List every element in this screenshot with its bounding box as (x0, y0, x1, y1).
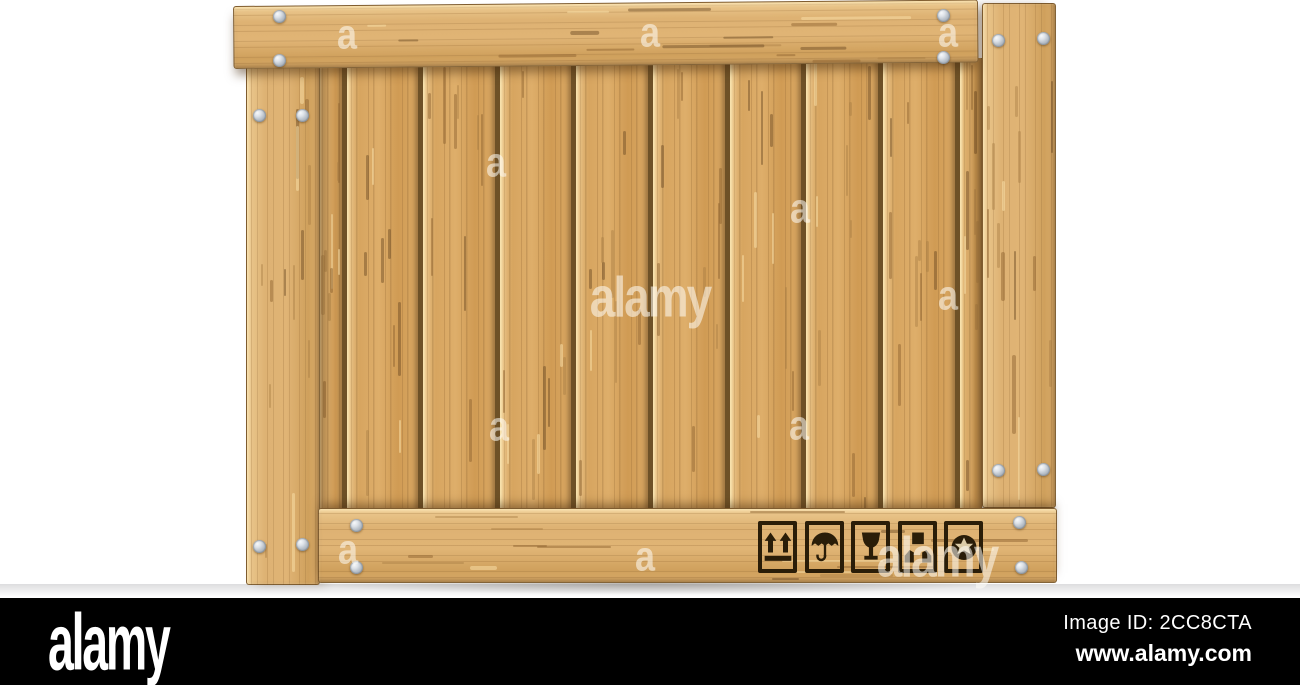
wood-grain-streak (537, 434, 540, 474)
rivet-icon (992, 464, 1005, 477)
wood-grain-streak (770, 114, 773, 147)
wood-grain-streak (261, 264, 263, 286)
wood-grain-streak (499, 54, 577, 58)
wood-grain-streak (507, 424, 509, 463)
wood-grain-streak (408, 555, 432, 558)
wood-plank (500, 58, 571, 513)
rivet-icon (937, 51, 950, 64)
wood-grain-streak (296, 126, 299, 192)
wood-grain-streak (742, 255, 744, 301)
wood-grain-streak (615, 301, 617, 383)
rivet-icon (273, 54, 286, 67)
wood-grain-streak (457, 85, 459, 119)
wood-grain-streak (812, 60, 860, 63)
wood-grain-streak (328, 293, 331, 320)
wood-grain-streak (997, 223, 1000, 268)
wood-grain-streak (393, 325, 395, 368)
wood-grain-streak (974, 91, 977, 154)
wood-grain-streak (966, 171, 969, 250)
wood-grain-streak (367, 24, 387, 26)
wood-grain-streak (589, 269, 592, 289)
wood-grain-streak (915, 256, 918, 327)
rivet-icon (992, 34, 1005, 47)
wood-grain-streak (716, 324, 719, 349)
wood-grain-streak (852, 453, 855, 497)
symbol-keep-dry-icon (805, 521, 844, 573)
rivet-icon (296, 109, 309, 122)
wood-grain-streak (308, 340, 311, 378)
wood-grain-streak (548, 378, 551, 427)
wood-grain-streak (623, 131, 626, 156)
wood-grain-streak (776, 54, 795, 56)
symbol-this-side-up-icon (758, 521, 797, 573)
wood-grain-streak (918, 240, 921, 262)
symbol-handle-with-care-icon (898, 521, 937, 573)
wood-grain-streak (301, 230, 304, 280)
wood-grain-streak (477, 115, 479, 150)
wood-grain-streak (800, 46, 846, 49)
wood-grain-streak (772, 578, 799, 580)
wood-plank (730, 58, 801, 513)
wood-grain-streak (761, 91, 764, 166)
wood-grain-streak (381, 238, 384, 283)
wood-grain-streak (975, 304, 978, 330)
footer-credit-block: Image ID: 2CC8CTA www.alamy.com (1063, 612, 1252, 667)
wood-grain-streak (372, 148, 374, 185)
wood-grain-streak (754, 192, 757, 249)
rivet-icon (273, 10, 286, 23)
wood-grain-streak (1002, 181, 1005, 211)
wood-grain-streak (628, 7, 711, 11)
crate-right-board (982, 3, 1056, 508)
wood-grain-streak (292, 493, 294, 572)
wood-grain-streak (382, 562, 464, 565)
wood-grain-streak (537, 546, 611, 548)
rivet-icon (350, 561, 363, 574)
wood-grain-streak (820, 574, 893, 577)
wood-grain-streak (723, 36, 774, 39)
rivet-icon (1037, 463, 1050, 476)
wood-grain-streak (663, 45, 765, 48)
wood-grain-streak (364, 252, 367, 276)
wood-grain-streak (590, 330, 592, 371)
wood-grain-streak (388, 229, 391, 260)
wood-grain-streak (366, 430, 369, 496)
rivet-icon (937, 9, 950, 22)
wood-grain-streak (443, 67, 446, 144)
wood-grain-streak (638, 309, 641, 344)
symbol-fragile-icon (851, 521, 890, 573)
wood-grain-streak (818, 330, 821, 386)
wood-grain-streak (1014, 251, 1017, 321)
wood-grain-streak (1018, 417, 1020, 500)
wood-grain-streak (971, 65, 974, 110)
wood-grain-streak (337, 162, 340, 182)
wood-grain-streak (431, 218, 433, 276)
wood-grain-streak (1012, 355, 1015, 434)
wood-grain-streak (850, 220, 853, 238)
wood-grain-streak (757, 415, 760, 438)
rivet-icon (350, 519, 363, 532)
rivet-icon (1013, 516, 1026, 529)
wood-grain-streak (976, 221, 979, 283)
wood-plank (960, 58, 982, 513)
wood-grain-streak (428, 93, 431, 119)
alamy-logo: alamy (48, 604, 169, 683)
wood-grain-streak (677, 69, 680, 119)
rivet-icon (1015, 561, 1028, 574)
wood-grain-streak (330, 268, 333, 293)
rivet-icon (296, 538, 309, 551)
wood-grain-streak (889, 212, 892, 279)
wood-grain-streak (300, 77, 303, 104)
symbol-recycle-icon (944, 521, 983, 573)
wood-grain-streak (579, 460, 582, 496)
wood-grain-streak (1018, 131, 1021, 183)
wood-grain-streak (464, 236, 467, 311)
wood-grain-streak (1051, 81, 1053, 153)
rivet-icon (253, 109, 266, 122)
wood-grain-streak (657, 263, 660, 337)
wood-grain-streak (719, 168, 722, 223)
wood-grain-streak (503, 370, 506, 413)
image-id-text: Image ID: 2CC8CTA (1063, 612, 1252, 635)
crate-drop-shadow (222, 583, 1070, 598)
wood-grain-streak (748, 80, 751, 111)
wood-grain-streak (987, 106, 990, 130)
rivet-icon (253, 540, 266, 553)
wood-grain-streak (491, 528, 543, 530)
wood-plank (806, 58, 878, 513)
wood-plank (576, 58, 648, 513)
wood-grain-streak (992, 143, 995, 210)
wood-grain-streak (966, 60, 968, 110)
wood-grain-streak (966, 460, 969, 491)
wood-grain-streak (601, 237, 604, 264)
wood-grain-streak (399, 40, 419, 42)
wood-grain-streak (964, 236, 967, 294)
wood-grain-streak (399, 420, 401, 453)
wood-plank (423, 58, 495, 513)
wood-grain-streak (324, 250, 327, 272)
alamy-url-text: www.alamy.com (1063, 640, 1252, 667)
wood-grain-streak (926, 241, 929, 273)
wood-grain-streak (792, 371, 794, 411)
wood-grain-streak (1049, 340, 1052, 387)
wood-grain-streak (270, 280, 273, 302)
wood-grain-streak (846, 145, 848, 196)
wood-plank (883, 58, 955, 513)
wood-grain-streak (814, 58, 817, 106)
wood-grain-streak (681, 72, 684, 102)
wood-grain-streak (920, 273, 922, 322)
wood-grain-streak (481, 114, 484, 186)
wood-grain-streak (611, 230, 614, 299)
rivet-icon (1037, 32, 1050, 45)
wood-grain-streak (703, 267, 706, 297)
wood-grain-streak (532, 439, 535, 501)
wood-plank (653, 58, 725, 513)
wood-grain-streak (470, 566, 497, 569)
wood-grain-streak (321, 255, 324, 315)
wood-grain-streak (560, 344, 563, 366)
wood-plank (318, 58, 342, 513)
wood-grain-streak (308, 165, 311, 225)
crate-inner-planks (318, 58, 982, 513)
wood-grain-streak (366, 155, 369, 200)
wood-grain-streak (567, 11, 609, 14)
wood-grain-streak (791, 23, 837, 26)
wood-grain-streak (284, 269, 286, 296)
wood-grain-streak (435, 516, 518, 518)
wood-grain-streak (323, 381, 326, 418)
wood-grain-streak (469, 399, 472, 462)
wood-plank (347, 58, 418, 513)
wood-grain-streak (293, 265, 295, 320)
wood-grain-streak (661, 145, 664, 188)
wood-grain-streak (868, 66, 871, 120)
crate-top-board (233, 0, 979, 69)
wood-grain-streak (1001, 252, 1004, 301)
wood-grain-streak (398, 302, 401, 376)
wood-grain-streak (785, 287, 788, 369)
wood-grain-streak (907, 102, 910, 124)
wood-grain-streak (692, 426, 695, 472)
wood-grain-streak (602, 262, 605, 280)
wood-grain-streak (890, 118, 892, 157)
wood-grain-streak (522, 71, 524, 98)
wood-grain-streak (586, 49, 635, 52)
wood-grain-streak (570, 31, 599, 35)
wood-grain-streak (1015, 86, 1018, 118)
wood-grain-streak (878, 57, 926, 60)
wood-grain-streak (802, 16, 912, 20)
wood-grain-streak (772, 213, 775, 264)
wood-grain-streak (269, 384, 271, 408)
wood-grain-streak (898, 344, 901, 407)
wood-grain-streak (338, 249, 340, 275)
wood-grain-streak (816, 196, 818, 227)
wood-grain-streak (1033, 256, 1036, 291)
wood-grain-streak (987, 209, 989, 278)
crate-left-board (246, 64, 320, 585)
stock-image-canvas: aaaaaaaaaaalamyalamy alamy Image ID: 2CC… (0, 0, 1300, 685)
wood-grain-streak (543, 366, 546, 449)
wood-grain-streak (849, 102, 852, 116)
wood-grain-streak (934, 251, 937, 290)
wood-grain-streak (750, 511, 846, 513)
